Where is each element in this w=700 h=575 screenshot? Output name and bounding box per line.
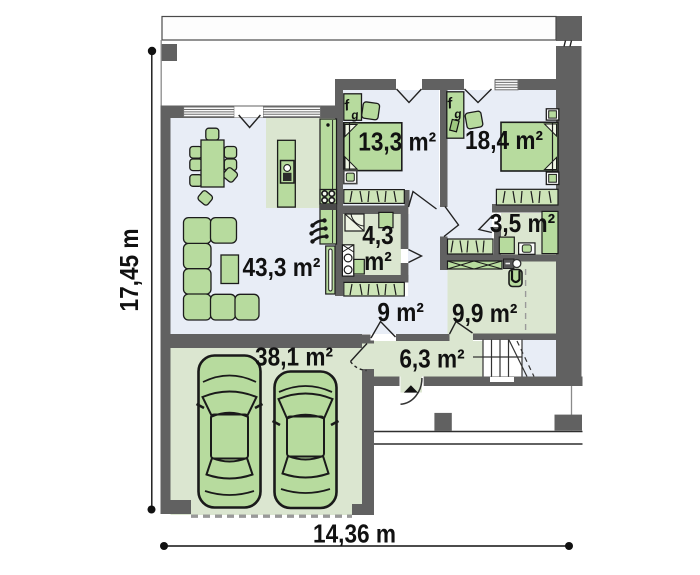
svg-text:m²: m² bbox=[364, 248, 392, 277]
svg-text:38,1 m²: 38,1 m² bbox=[255, 343, 333, 372]
svg-text:13,3 m²: 13,3 m² bbox=[358, 128, 436, 157]
svg-text:4,3: 4,3 bbox=[362, 222, 393, 251]
svg-text:17,45 m: 17,45 m bbox=[116, 229, 145, 312]
svg-text:43,3 m²: 43,3 m² bbox=[242, 254, 320, 283]
svg-text:9 m²: 9 m² bbox=[377, 299, 423, 328]
svg-text:6,3 m²: 6,3 m² bbox=[399, 345, 464, 374]
svg-text:18,4 m²: 18,4 m² bbox=[465, 127, 543, 156]
svg-text:14,36 m: 14,36 m bbox=[313, 520, 396, 549]
svg-text:9,9 m²: 9,9 m² bbox=[452, 300, 517, 329]
svg-text:3,5 m²: 3,5 m² bbox=[490, 210, 555, 239]
